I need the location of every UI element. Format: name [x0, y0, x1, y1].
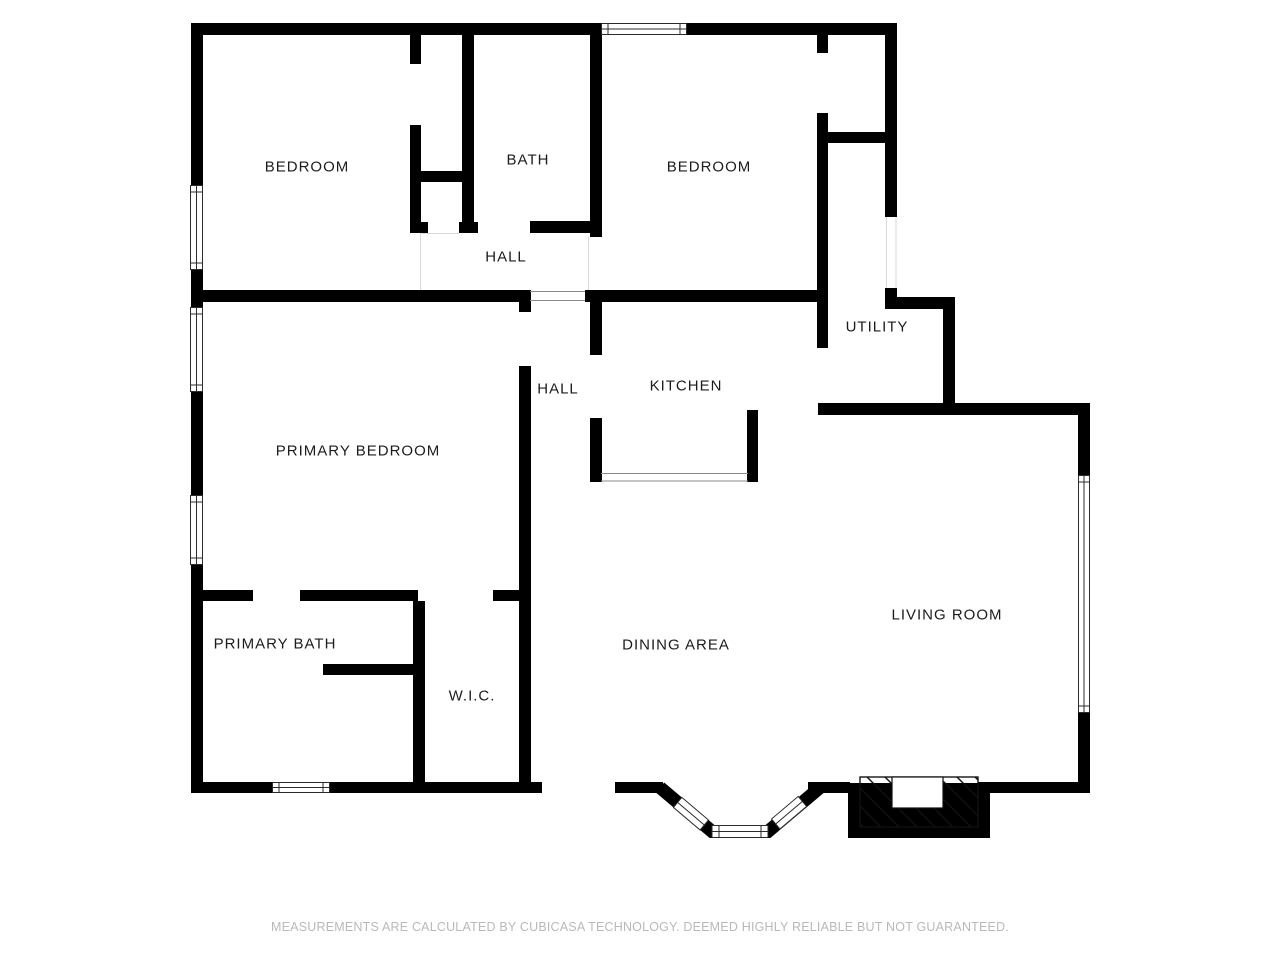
room-label-bedroom-right: BEDROOM — [667, 159, 752, 176]
wall — [300, 590, 418, 601]
wall — [191, 23, 203, 793]
window — [712, 826, 768, 838]
wall — [943, 297, 955, 415]
window — [273, 783, 330, 793]
wall — [410, 222, 428, 233]
wall — [519, 290, 531, 312]
room-label-wic: W.I.C. — [449, 688, 496, 705]
wall — [828, 132, 886, 143]
wall — [191, 23, 897, 35]
fireplace-firebox — [892, 777, 943, 808]
room-label-hall-upper: HALL — [485, 249, 527, 266]
wall — [885, 23, 897, 217]
wall — [413, 601, 425, 783]
wall — [590, 418, 602, 482]
wall — [818, 403, 1090, 415]
room-label-living-room: LIVING ROOM — [891, 607, 1002, 624]
room-label-utility: UTILITY — [846, 319, 909, 336]
wall — [615, 782, 663, 793]
wall — [410, 35, 421, 64]
wall — [410, 125, 421, 232]
wall — [462, 35, 474, 233]
room-label-hall-lower: HALL — [537, 381, 579, 398]
wall — [191, 290, 530, 302]
window — [191, 308, 203, 392]
wall — [191, 590, 253, 601]
window — [191, 186, 203, 270]
wall — [459, 222, 478, 233]
window — [1079, 476, 1090, 713]
room-label-primary-bath: PRIMARY BATH — [214, 636, 337, 653]
wall — [590, 35, 602, 237]
room-label-primary-bedroom: PRIMARY BEDROOM — [276, 443, 440, 460]
room-label-kitchen: KITCHEN — [650, 378, 723, 395]
wall — [817, 113, 828, 348]
disclaimer-text: MEASUREMENTS ARE CALCULATED BY CUBICASA … — [271, 920, 1009, 934]
wall — [978, 782, 1090, 793]
wall — [590, 302, 602, 355]
wall — [585, 290, 820, 302]
wall — [323, 664, 418, 675]
wall — [817, 35, 828, 53]
room-label-dining-area: DINING AREA — [622, 637, 730, 654]
walls-layer — [191, 23, 1090, 793]
room-label-bath: BATH — [507, 152, 550, 169]
wall — [191, 782, 542, 793]
bay-window — [660, 788, 820, 838]
wall — [493, 590, 531, 601]
window — [602, 24, 687, 35]
wall — [519, 366, 531, 793]
wall — [747, 410, 758, 482]
window — [191, 496, 203, 565]
fireplace — [848, 777, 990, 838]
wall — [421, 171, 462, 182]
room-label-bedroom-left: BEDROOM — [265, 159, 350, 176]
floor-plan-screenshot: BEDROOM BATH BEDROOM HALL UTILITY HALL K… — [0, 0, 1280, 960]
floor-plan-drawing — [0, 0, 1280, 960]
